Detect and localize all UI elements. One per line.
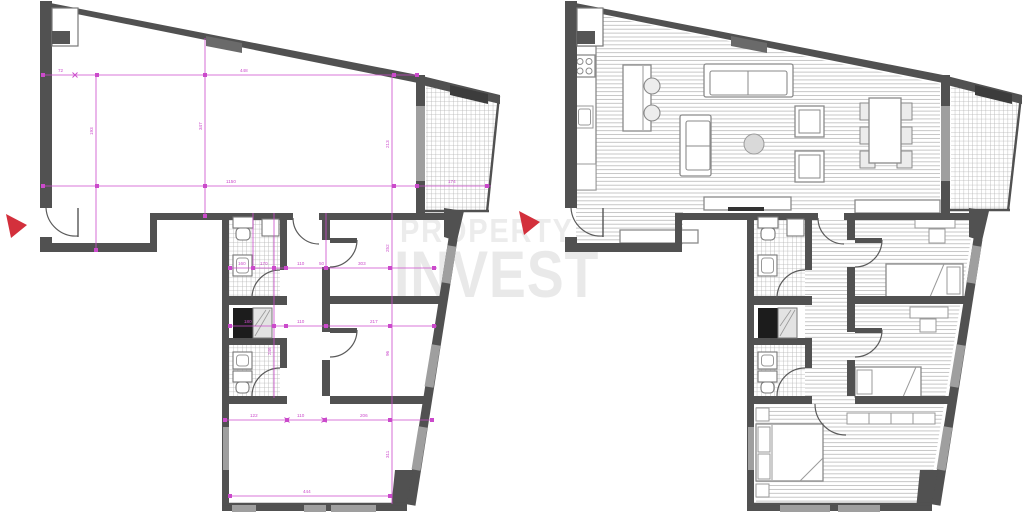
svg-text:170: 170 <box>260 261 268 266</box>
svg-text:347: 347 <box>198 122 203 130</box>
svg-text:110: 110 <box>297 413 305 418</box>
svg-text:122: 122 <box>250 413 258 418</box>
svg-text:96: 96 <box>385 350 390 356</box>
svg-text:1150: 1150 <box>226 179 236 184</box>
svg-text:72: 72 <box>58 68 64 73</box>
svg-text:311: 311 <box>385 450 390 458</box>
svg-text:193: 193 <box>89 127 94 135</box>
svg-text:217: 217 <box>370 319 378 324</box>
svg-text:180: 180 <box>244 319 252 324</box>
svg-text:160: 160 <box>238 261 246 266</box>
svg-text:444: 444 <box>303 489 311 494</box>
svg-text:303: 303 <box>358 261 366 266</box>
svg-text:110: 110 <box>297 261 305 266</box>
svg-text:246: 246 <box>267 347 272 355</box>
svg-text:252: 252 <box>385 244 390 252</box>
svg-text:213: 213 <box>385 140 390 148</box>
svg-text:50: 50 <box>319 261 325 266</box>
svg-text:110: 110 <box>297 319 305 324</box>
svg-text:174: 174 <box>448 179 456 184</box>
svg-text:448: 448 <box>240 68 248 73</box>
svg-text:206: 206 <box>360 413 368 418</box>
